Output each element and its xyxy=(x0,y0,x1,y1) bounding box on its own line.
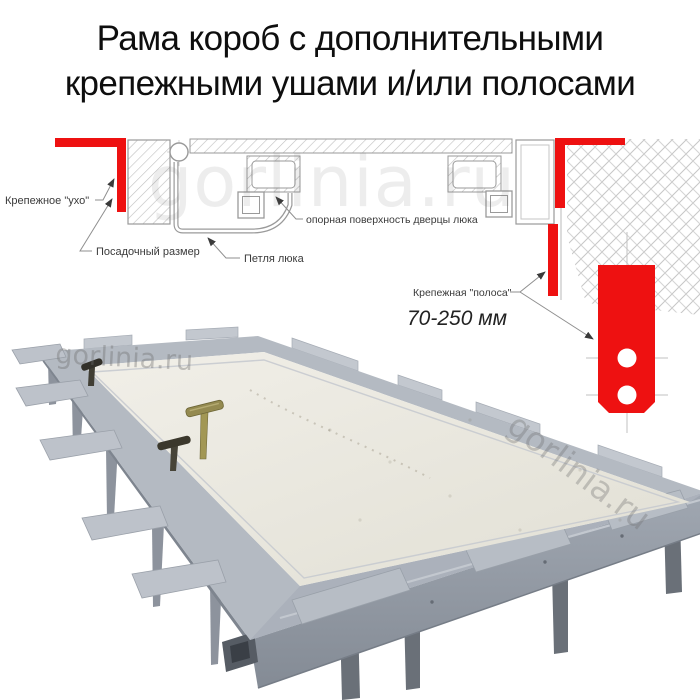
mounting-strip-section xyxy=(548,224,558,296)
hatch-photo xyxy=(12,327,700,700)
label-mounting-strip: Крепежная "полоса" xyxy=(413,287,512,299)
label-seat-size: Посадочный размер xyxy=(96,246,200,258)
label-strip-range: 70-250 мм xyxy=(407,307,507,330)
illustration-canvas: Крепежное "ухо" Посадочный размер Петля … xyxy=(0,0,700,700)
page: Рама короб с дополнительными крепежными … xyxy=(0,0,700,700)
label-mounting-ear: Крепежное "ухо" xyxy=(5,195,89,207)
watermark-diagram: gorlinia.ru xyxy=(148,141,516,223)
label-hinge: Петля люка xyxy=(244,253,305,265)
frame-profile-right xyxy=(516,140,554,224)
